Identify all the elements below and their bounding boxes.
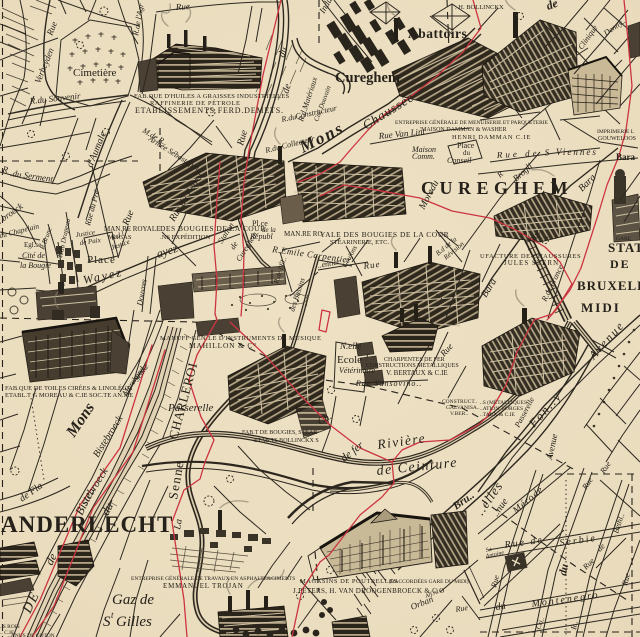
svg-text:MAGASINS DE POUTRELLES: MAGASINS DE POUTRELLES xyxy=(300,578,398,585)
svg-text:JULES STERN: JULES STERN xyxy=(504,259,559,267)
svg-text:IMPRIMERIE L: IMPRIMERIE L xyxy=(597,129,635,135)
svg-text:Abattoirs: Abattoirs xyxy=(408,26,467,41)
svg-text:FAB.T DE BOUGIES, STÉAR: FAB.T DE BOUGIES, STÉAR xyxy=(242,428,317,436)
svg-text:MAHILLON & C°: MAHILLON & C° xyxy=(189,341,257,350)
svg-text:Rue: Rue xyxy=(174,1,190,12)
svg-text:ANDERLECHT: ANDERLECHT xyxy=(1,512,173,537)
svg-text:CUREGHEM: CUREGHEM xyxy=(421,178,573,198)
svg-text:ETABLISSEMENTS FERD.DEMETS.: ETABLISSEMENTS FERD.DEMETS. xyxy=(135,106,284,115)
svg-text:MAN.RE ROYALE: MAN.RE ROYALE xyxy=(104,225,160,233)
svg-text:'MAISON DAMMAN & WASHER: 'MAISON DAMMAN & WASHER xyxy=(420,127,506,133)
svg-text:Conseil: Conseil xyxy=(447,156,472,165)
svg-text:la Bougie: la Bougie xyxy=(20,261,51,270)
svg-text:YALE DES BOUGIES DE LA COUR: YALE DES BOUGIES DE LA COUR xyxy=(320,230,449,239)
svg-text:(RACCORDÉES GARE DU MIDI): (RACCORDÉES GARE DU MIDI) xyxy=(389,577,469,585)
svg-text:Cité de: Cité de xyxy=(22,251,45,260)
svg-text:ETAB.TS BOLLINCKX S: ETAB.TS BOLLINCKX S xyxy=(254,438,319,444)
svg-text:BRUXELLES: BRUXELLES xyxy=(577,278,640,293)
svg-text:..S (MÉTALLIQUES: ..S (MÉTALLIQUES xyxy=(480,398,527,406)
svg-text:Bara: Bara xyxy=(616,152,635,162)
svg-text:Ecole: Ecole xyxy=(337,354,362,366)
svg-text:.NS EXPÉDITION: .NS EXPÉDITION xyxy=(160,233,210,241)
svg-text:STÉARINERIE, ETC.: STÉARINERIE, ETC. xyxy=(330,238,389,246)
svg-text:ENTREPRISE GÉNÉRALE DE TRAVAUX: ENTREPRISE GÉNÉRALE DE TRAVAUX EN ASPHAL… xyxy=(131,574,295,582)
svg-text:ETABL.T G MOREAU & C.IE SOC.TE: ETABL.T G MOREAU & C.IE SOC.TE AN.ME xyxy=(5,392,133,399)
svg-text:HENRI DAMMAN C.IE: HENRI DAMMAN C.IE xyxy=(452,134,531,141)
svg-text:FAB.QUE D'HUILES A GRAISSES IN: FAB.QUE D'HUILES A GRAISSES INDUSTRIELLE… xyxy=(134,93,290,100)
svg-text:GARE: GARE xyxy=(616,236,632,242)
svg-text:Place: Place xyxy=(87,254,116,266)
svg-text:N.elle: N.elle xyxy=(339,341,361,351)
svg-text:V. BERTAUX & C.IE: V. BERTAUX & C.IE xyxy=(386,369,448,377)
svg-text:Passerelle: Passerelle xyxy=(167,402,214,414)
svg-text:du: du xyxy=(495,601,506,613)
svg-text:S: S xyxy=(103,614,111,630)
svg-text:V.BER..: V.BER.. xyxy=(450,411,469,417)
svg-text:..TAUX & C.IE: ..TAUX & C.IE xyxy=(480,412,515,418)
svg-text:CONSTRUCTIONS MÉTALLIQUES: CONSTRUCTIONS MÉTALLIQUES xyxy=(366,361,459,369)
svg-text:STAT: STAT xyxy=(608,240,640,255)
svg-text:Comm.: Comm. xyxy=(412,152,435,161)
svg-text:Gilles: Gilles xyxy=(116,614,152,630)
svg-text:du: du xyxy=(557,563,571,577)
svg-text:MAN.RE RO: MAN.RE RO xyxy=(284,230,323,238)
svg-text:J.PETERS, H. VAN DROOGENBROECK: J.PETERS, H. VAN DROOGENBROECK & C.O xyxy=(293,587,445,595)
svg-text:ENTREPRISE GÉNÉRALE DE MENUISE: ENTREPRISE GÉNÉRALE DE MENUISERIE ET PAR… xyxy=(395,118,549,126)
svg-text:Gaz de: Gaz de xyxy=(112,592,154,608)
svg-text:MIDI: MIDI xyxy=(581,300,621,315)
svg-text:. H. BOLLINCKX: . H. BOLLINCKX xyxy=(455,4,504,11)
svg-text:..ANUS DE COTON: ..ANUS DE COTON xyxy=(8,633,55,637)
svg-text:DE: DE xyxy=(610,257,631,271)
svg-text:GOUWELOOS: GOUWELOOS xyxy=(598,136,636,142)
svg-text:R..: R.. xyxy=(569,620,580,631)
svg-text:FAB.QUE DE TOILES CIRÉES & LIN: FAB.QUE DE TOILES CIRÉES & LINOLÉUM xyxy=(5,384,133,392)
svg-text:Cimetière: Cimetière xyxy=(73,67,116,79)
svg-text:Viennes: Viennes xyxy=(556,147,598,157)
svg-text:La: La xyxy=(172,518,185,531)
svg-text:EMMANUEL TROJAN: EMMANUEL TROJAN xyxy=(163,582,244,590)
svg-text:Cureghem: Cureghem xyxy=(335,70,400,86)
